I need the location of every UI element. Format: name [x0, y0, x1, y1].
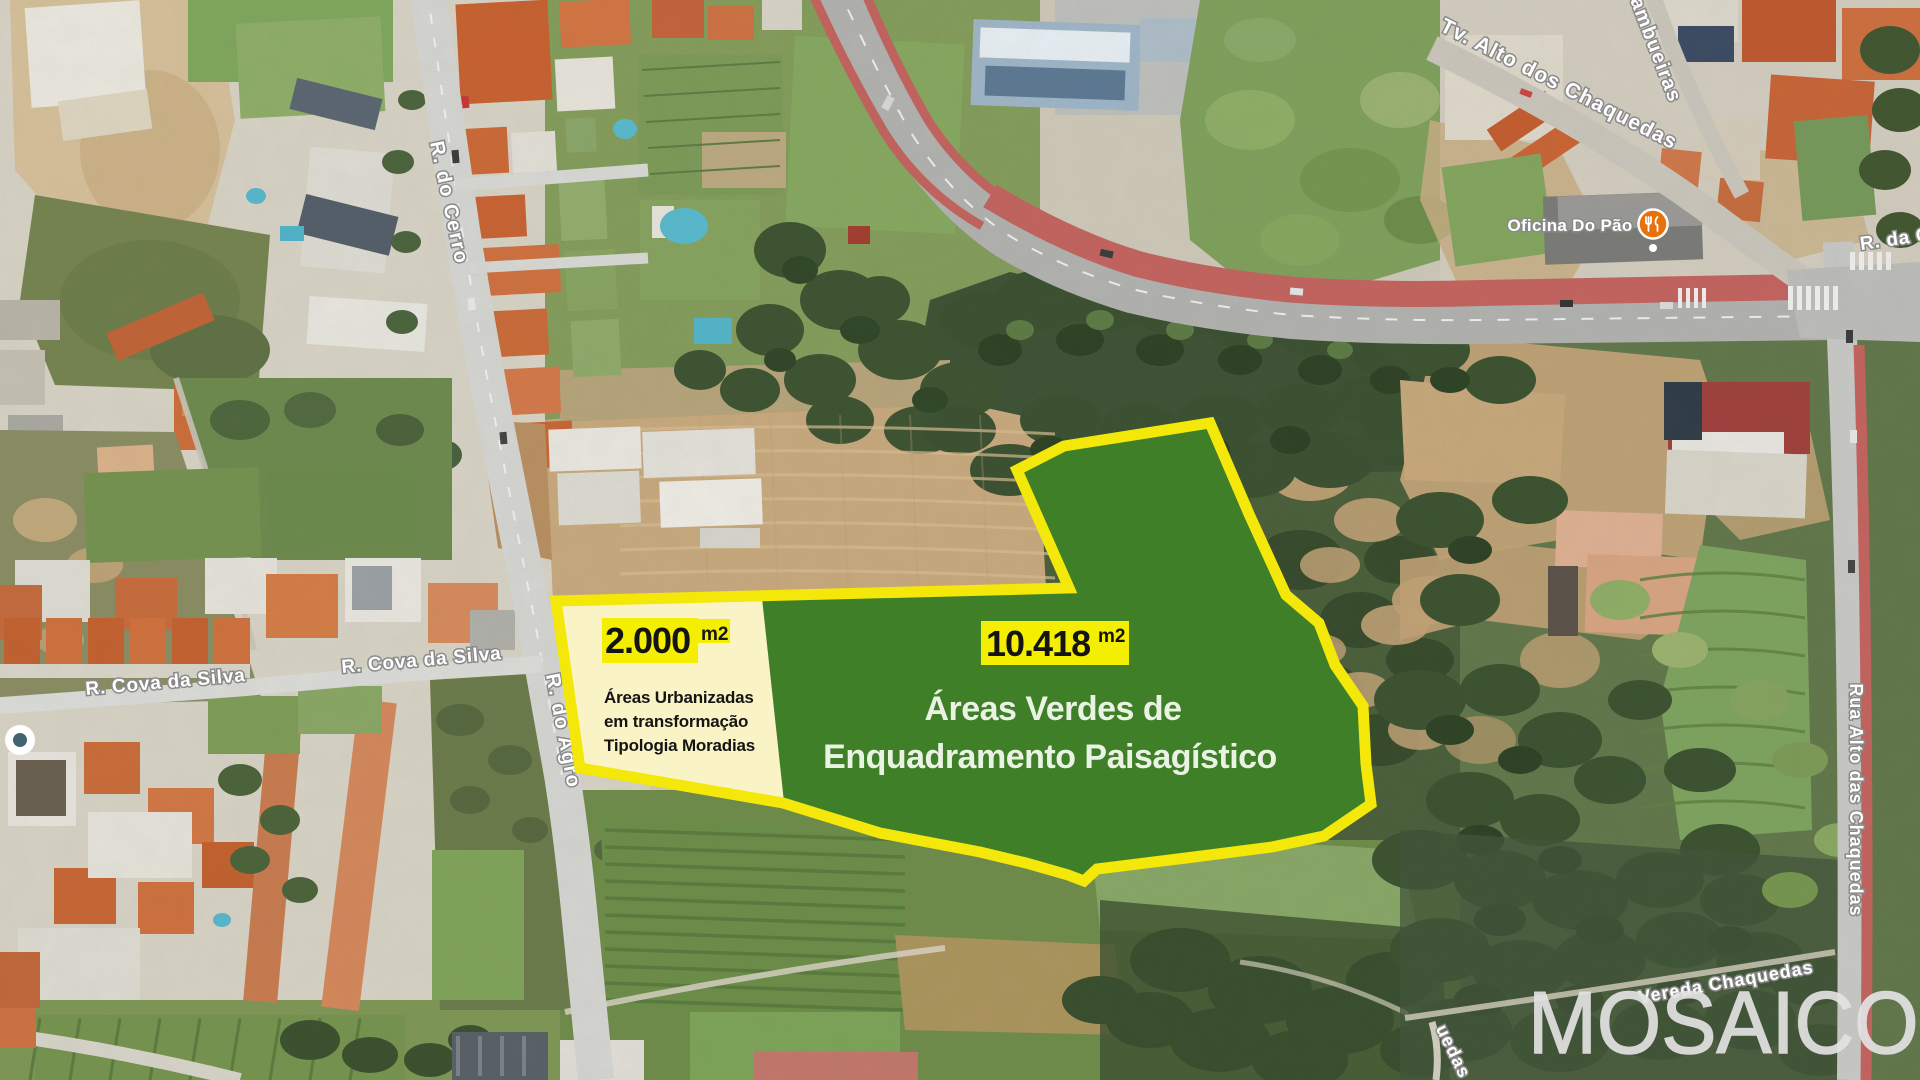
svg-text:2.000: 2.000 — [605, 620, 690, 661]
svg-text:Áreas Verdes de: Áreas Verdes de — [924, 690, 1181, 728]
svg-text:Áreas Urbanizadas: Áreas Urbanizadas — [604, 688, 754, 707]
svg-text:10.418: 10.418 — [986, 623, 1090, 664]
svg-text:Enquadramento Paisagístico: Enquadramento Paisagístico — [823, 738, 1277, 776]
svg-text:em transformação: em transformação — [604, 712, 748, 731]
svg-text:m2: m2 — [1098, 626, 1125, 647]
svg-text:Tipologia Moradias: Tipologia Moradias — [604, 736, 755, 755]
svg-text:Oficina Do Pão: Oficina Do Pão — [1507, 216, 1632, 235]
svg-text:MOSAICO: MOSAICO — [1528, 975, 1919, 1073]
svg-text:Rua Alto das Chaquedas: Rua Alto das Chaquedas — [1846, 683, 1866, 916]
svg-text:m2: m2 — [701, 624, 728, 645]
